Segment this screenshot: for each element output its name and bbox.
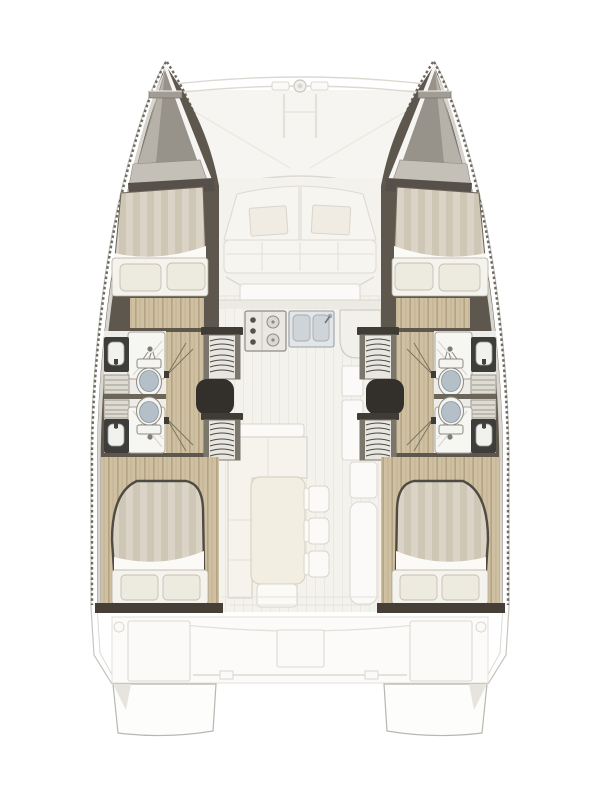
pillow bbox=[167, 263, 205, 290]
toilet-tank bbox=[137, 425, 161, 434]
cockpit-table bbox=[277, 630, 324, 667]
faucet-knob bbox=[114, 361, 118, 365]
stairs-forward bbox=[204, 335, 240, 379]
shower-head-icon bbox=[147, 434, 152, 439]
sofa-backrest bbox=[232, 424, 304, 437]
beam-fitting bbox=[272, 82, 289, 90]
toilet-tank bbox=[137, 359, 161, 368]
forestay-ring-center bbox=[298, 84, 303, 89]
stair-rail bbox=[204, 420, 209, 460]
stern-cleat-icon bbox=[476, 622, 486, 632]
shelf-unit bbox=[104, 375, 129, 394]
shower-head-icon bbox=[147, 346, 152, 351]
stair-lintel bbox=[201, 327, 243, 335]
heads-divider-wall bbox=[104, 394, 166, 399]
pillow bbox=[163, 575, 200, 600]
sink-basin bbox=[313, 315, 329, 341]
chair-back bbox=[304, 488, 309, 510]
burner-center bbox=[271, 320, 274, 323]
stove-knob-icon bbox=[250, 339, 256, 345]
saloon bbox=[214, 178, 386, 612]
pillow bbox=[121, 575, 158, 600]
galley-threshold bbox=[219, 300, 381, 309]
seat-cushion bbox=[311, 205, 350, 235]
chart-seat bbox=[350, 462, 377, 498]
chair-back bbox=[304, 553, 309, 575]
floor-plan-canvas bbox=[0, 0, 600, 800]
stove-knob-icon bbox=[250, 317, 256, 323]
dining-chair bbox=[308, 518, 329, 544]
pillow bbox=[120, 264, 161, 291]
stair-rail bbox=[235, 335, 240, 379]
stair-rail bbox=[204, 335, 209, 379]
cabin-aft-sill bbox=[95, 603, 223, 613]
hull-doorway bbox=[196, 379, 234, 415]
door-jamb bbox=[164, 371, 169, 378]
rail-clip bbox=[220, 671, 233, 679]
aft-cabin-port bbox=[95, 457, 223, 613]
stair-rail bbox=[235, 420, 240, 460]
rail-clip bbox=[365, 671, 378, 679]
dining-chair bbox=[308, 486, 329, 512]
door-jamb bbox=[164, 417, 169, 424]
burner-center bbox=[271, 338, 274, 341]
stove-knob-icon bbox=[250, 328, 256, 334]
faucet-knob bbox=[114, 425, 118, 429]
shelf-unit bbox=[104, 400, 129, 418]
sink-basin bbox=[293, 315, 310, 341]
cockpit-bench-port bbox=[128, 621, 190, 681]
toilet-lid bbox=[140, 371, 159, 392]
beam-fitting bbox=[311, 82, 328, 90]
cabin-floor bbox=[130, 298, 204, 328]
chair-back bbox=[304, 520, 309, 542]
heads-port bbox=[104, 331, 204, 453]
dining-chairs bbox=[304, 486, 329, 577]
dining-chair bbox=[308, 551, 329, 577]
seat-cushion bbox=[249, 206, 288, 237]
stern-cleat-icon bbox=[114, 622, 124, 632]
catamaran-floor-plan bbox=[0, 0, 600, 800]
table-end-bench bbox=[257, 584, 297, 607]
cockpit-bench-starboard bbox=[410, 621, 472, 681]
stair-lintel bbox=[201, 413, 243, 420]
chart-bench bbox=[350, 502, 377, 604]
bow-fitting bbox=[149, 91, 182, 98]
toilet-lid bbox=[140, 402, 159, 423]
saloon-table bbox=[251, 477, 305, 584]
